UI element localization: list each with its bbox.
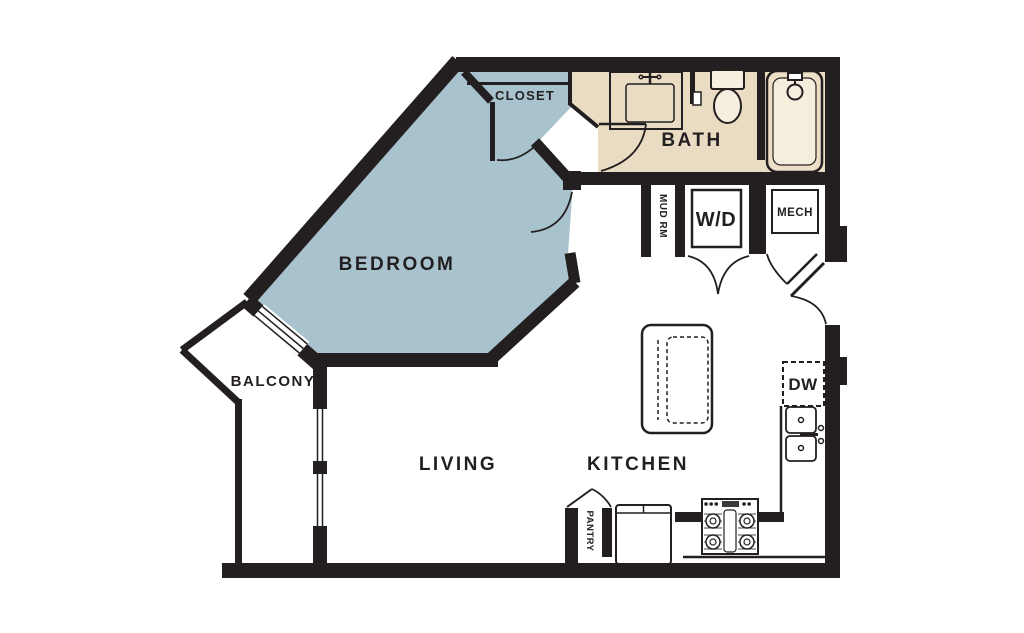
dishwasher-label: DW [788,375,818,394]
right-wall-jog-lower [828,357,847,385]
bedroom-door-jamb-wall [570,253,575,283]
mech-door-arc [767,254,787,284]
fridge-outline [616,505,671,564]
pantry-right-wall [602,508,612,557]
tub-drain [788,85,803,100]
balcony-label: BALCONY [231,373,316,390]
right-wall-jog-upper [828,226,847,262]
tub-partition-stub [757,72,765,160]
entry-door-leaf [791,263,824,296]
toilet-bowl [714,89,741,123]
pantry-door-leaf [567,489,592,507]
pantry-label: PANTRY [584,511,595,552]
mech-label: MECH [777,207,813,219]
bedroom-label: BEDROOM [339,254,456,275]
sink-basin-bottom [786,436,816,461]
wd-door-right-arc [718,256,749,294]
window-gap [313,474,327,526]
burner-3 [740,514,754,528]
sink-knob-bottom [819,439,824,444]
living-label: LIVING [419,454,497,475]
counter-bar-right [757,512,784,522]
refrigerator [616,505,671,564]
bathtub [767,71,822,172]
closet-label: CLOSET [495,88,555,103]
balcony-window-lower [313,474,327,526]
stove-display [722,501,739,507]
toilet-tank [711,70,744,89]
floor-plan-canvas: BEDROOM CLOSET BATH BALCONY LIVING KITCH… [0,0,1024,633]
window-gap [313,409,327,461]
pantry-left-wall [565,508,578,567]
island-outline [642,325,712,433]
sink-knob-top [819,426,824,431]
mudroom-label: MUD RM [657,194,668,238]
balcony-window-upper [313,409,327,461]
balcony-lower-wall [182,350,238,402]
burner-2 [706,535,720,549]
towel-bar [693,92,701,105]
stove [702,499,758,554]
kitchen-island [642,325,712,433]
kitchen-label: KITCHEN [587,454,689,475]
wd-door-left-arc [688,256,718,294]
toilet [711,70,744,123]
floor-plan: BEDROOM CLOSET BATH BALCONY LIVING KITCH… [0,0,1024,633]
balcony-upper-wall [182,302,247,350]
stove-center-panel [724,510,736,552]
washer-dryer-label: W/D [696,209,736,231]
pantry-door-arc [592,489,611,507]
burner-4 [740,535,754,549]
entry-door-arc [791,296,826,324]
sink-basin-top [786,407,816,433]
burner-1 [706,514,720,528]
tub-faucet-plate [788,73,802,80]
mech-door-leaf [787,254,817,284]
bath-label: BATH [661,130,722,151]
double-kitchen-sink [786,407,824,461]
